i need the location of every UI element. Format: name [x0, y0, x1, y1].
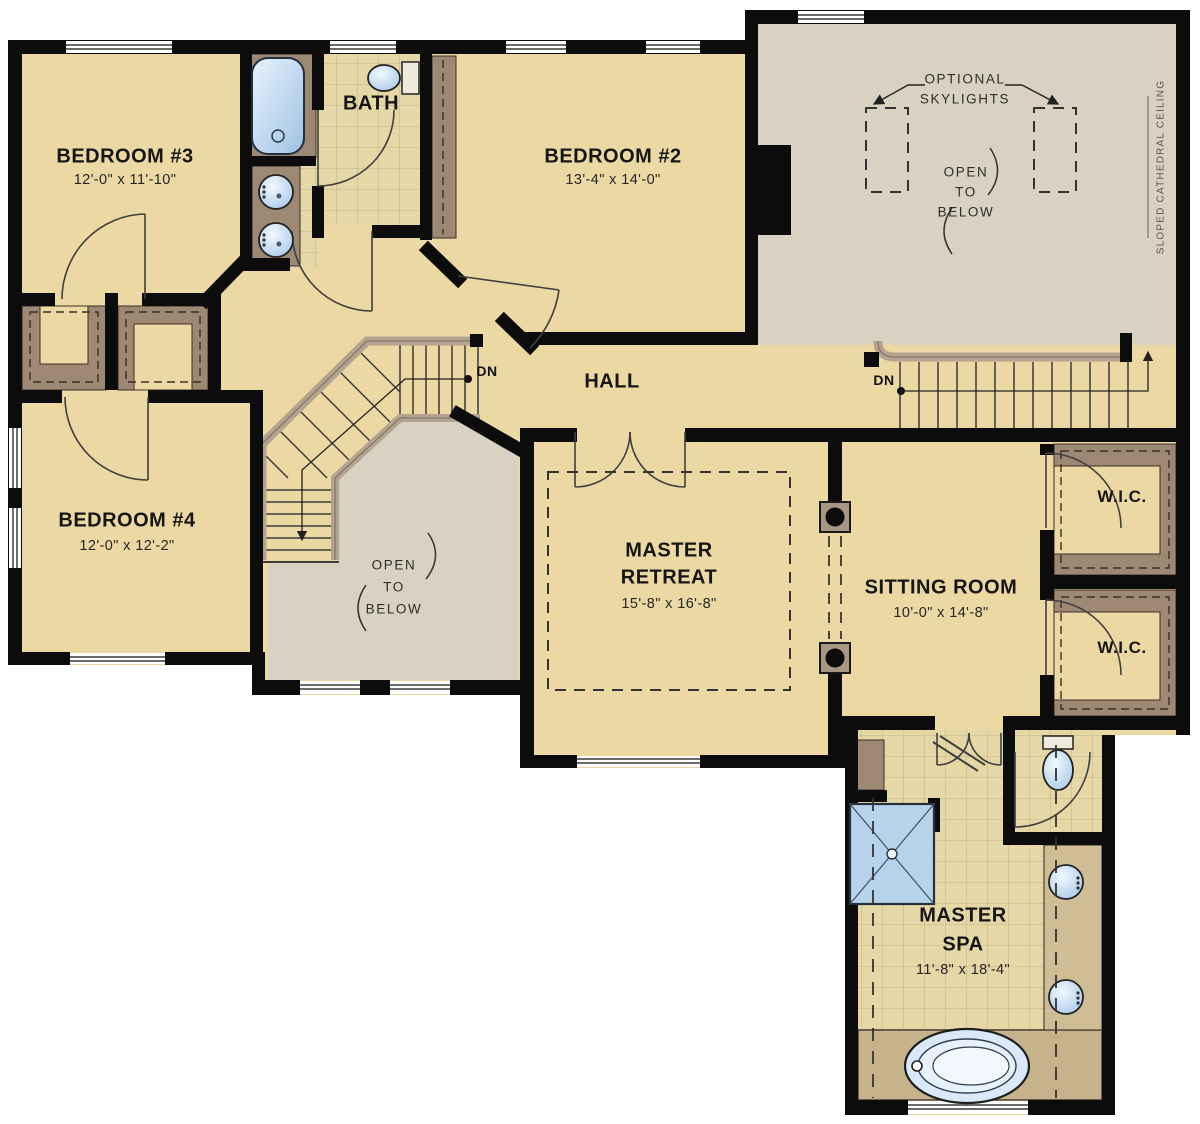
room-label-master-retreat-2: RETREAT: [621, 567, 717, 590]
room-dims-bedroom3: 12'-0" x 11'-10": [74, 172, 177, 188]
room-label-hall: HALL: [584, 371, 639, 394]
room-dims-bedroom2: 13'-4" x 14'-0": [565, 172, 660, 188]
room-dims-master-retreat: 15'-8" x 16'-8": [621, 596, 716, 612]
room-label-wic-lower: W.I.C.: [1097, 638, 1146, 658]
toilet-hall-bath: [368, 62, 419, 94]
room-label-master-spa-2: SPA: [942, 934, 983, 957]
room-label-sitting-room: SITTING ROOM: [865, 577, 1018, 600]
floor-plan-drawing: [0, 0, 1200, 1124]
annotation-sloped-ceiling: SLOPED CATHEDRAL CEILING: [1156, 80, 1167, 254]
shower-master-spa: [850, 804, 934, 904]
annotation-open-below-upper-1: OPEN: [944, 165, 989, 180]
floor-plan: BEDROOM #3 12'-0" x 11'-10" BATH BEDROOM…: [0, 0, 1200, 1124]
annotation-open-below-mid-1: OPEN: [372, 558, 417, 573]
bathtub-hall-bath: [252, 58, 304, 154]
room-label-master-retreat-1: MASTER: [625, 540, 712, 563]
toilet-master-spa: [1043, 736, 1073, 790]
room-label-bedroom2: BEDROOM #2: [544, 146, 681, 169]
annotation-open-below-mid-2: TO: [383, 580, 405, 595]
dn-label-right-stairs: DN: [873, 372, 894, 388]
annotation-skylights-2: SKYLIGHTS: [920, 92, 1010, 107]
room-dims-master-spa: 11'-8" x 18'-4": [916, 962, 1010, 978]
annotation-open-below-upper-3: BELOW: [938, 205, 995, 220]
room-label-wic-upper: W.I.C.: [1097, 487, 1146, 507]
annotation-open-below-upper-2: TO: [955, 185, 977, 200]
room-label-master-spa-1: MASTER: [919, 905, 1006, 928]
room-label-bath: BATH: [343, 93, 399, 116]
room-dims-sitting-room: 10'-0" x 14'-8": [893, 605, 988, 621]
room-label-bedroom4: BEDROOM #4: [58, 510, 195, 533]
annotation-skylights-1: OPTIONAL: [924, 72, 1005, 87]
annotation-open-below-mid-3: BELOW: [366, 602, 423, 617]
bathtub-master-spa: [905, 1029, 1029, 1103]
dn-label-central-stairs: DN: [476, 363, 497, 379]
room-label-bedroom3: BEDROOM #3: [56, 146, 193, 169]
room-dims-bedroom4: 12'-0" x 12'-2": [79, 538, 174, 554]
